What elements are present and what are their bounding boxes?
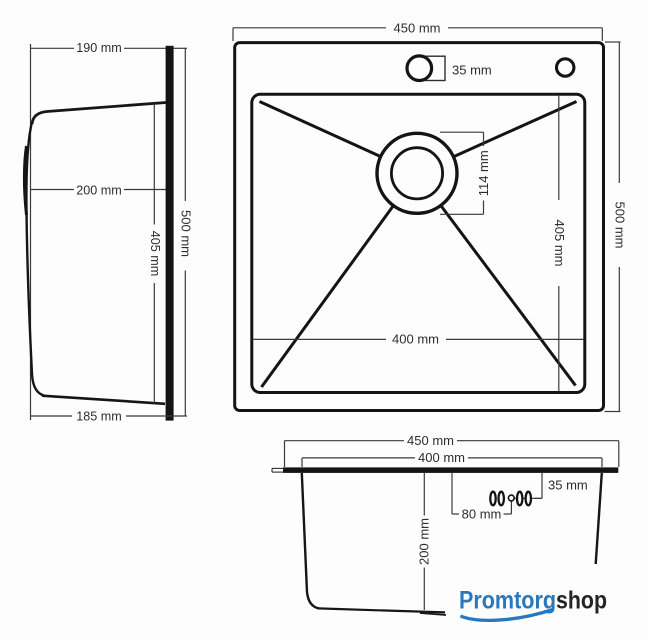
svg-text:200 mm: 200 mm (76, 183, 122, 197)
svg-text:80 mm: 80 mm (462, 506, 502, 521)
svg-text:shop: shop (556, 587, 607, 615)
svg-text:500 mm: 500 mm (612, 202, 627, 249)
svg-text:190 mm: 190 mm (76, 41, 122, 55)
svg-text:450 mm: 450 mm (407, 433, 454, 448)
svg-text:Promtorg: Promtorg (459, 587, 556, 615)
svg-text:405 mm: 405 mm (552, 220, 567, 267)
svg-text:400 mm: 400 mm (392, 332, 439, 347)
svg-text:450 mm: 450 mm (394, 20, 441, 35)
svg-text:405 mm: 405 mm (148, 231, 162, 277)
svg-text:35 mm: 35 mm (452, 63, 492, 78)
svg-text:114 mm: 114 mm (476, 150, 491, 196)
svg-text:185 mm: 185 mm (76, 409, 122, 423)
svg-text:200 mm: 200 mm (417, 518, 432, 565)
svg-text:400 mm: 400 mm (418, 450, 465, 465)
svg-text:500 mm: 500 mm (178, 210, 193, 257)
svg-text:35 mm: 35 mm (548, 478, 588, 493)
